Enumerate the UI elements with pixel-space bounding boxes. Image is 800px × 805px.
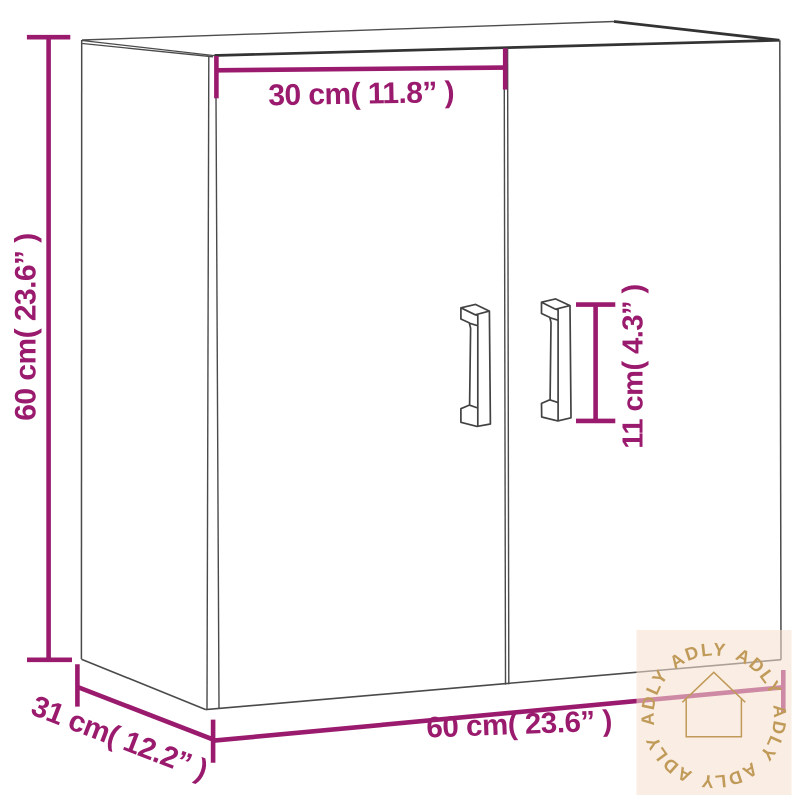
svg-text:30 cm( 11.8” ): 30 cm( 11.8” ) xyxy=(268,76,454,112)
svg-text:60 cm( 23.6” ): 60 cm( 23.6” ) xyxy=(10,233,43,420)
svg-text:11 cm( 4.3” ): 11 cm( 4.3” ) xyxy=(618,284,650,448)
